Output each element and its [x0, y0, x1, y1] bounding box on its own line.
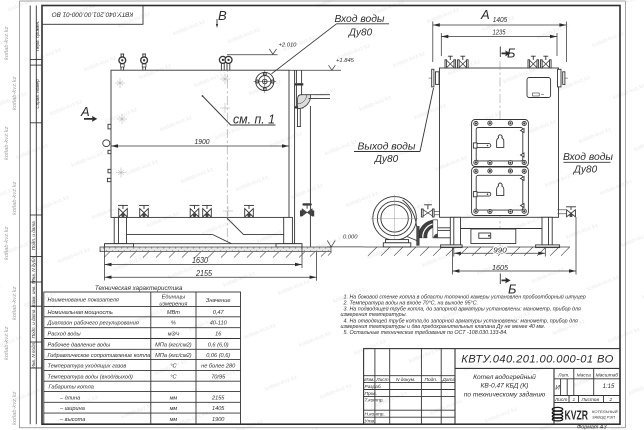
svg-text:1235: 1235: [493, 27, 507, 36]
svg-text:1:15: 1:15: [603, 384, 615, 390]
svg-text:1. На боковой стенке котла в: 1. На боковой стенке котла в области топ…: [344, 293, 586, 300]
svg-text:Вход воды: Вход воды: [563, 152, 613, 163]
svg-text:Ду80: Ду80: [348, 27, 373, 38]
svg-text:измерения: измерения: [159, 301, 187, 307]
svg-text:+2.010: +2.010: [279, 43, 298, 49]
svg-text:+1.845: +1.845: [336, 58, 355, 64]
svg-text:2155: 2155: [211, 395, 225, 401]
svg-text:Лист: Лист: [554, 397, 567, 403]
svg-text:мм: мм: [170, 417, 178, 423]
svg-text:0,06 (0,6): 0,06 (0,6): [206, 353, 230, 359]
svg-text:1900: 1900: [195, 137, 211, 146]
svg-text:kotlab-kvz.kz: kotlab-kvz.kz: [12, 391, 18, 425]
svg-text:Подп. и дата: Подп. и дата: [31, 221, 36, 250]
svg-text:0,6 (6,0): 0,6 (6,0): [208, 342, 229, 348]
svg-text:Н.контр.: Н.контр.: [365, 412, 385, 418]
svg-text:– ширина: – ширина: [59, 406, 85, 412]
svg-text:40-110: 40-110: [210, 321, 228, 327]
svg-text:°С: °С: [170, 364, 177, 370]
svg-text:КВТУ.040.201.00.000-01 ВО: КВТУ.040.201.00.000-01 ВО: [52, 10, 133, 17]
svg-text:Выход воды: Выход воды: [358, 142, 416, 153]
svg-text:Лит.: Лит.: [557, 373, 569, 379]
svg-text:Т.контр.: Т.контр.: [365, 398, 384, 404]
svg-text:16: 16: [215, 332, 222, 338]
svg-text:Лист: Лист: [375, 377, 388, 383]
svg-text:А: А: [80, 104, 90, 119]
svg-text:Рабочее давление воды: Рабочее давление воды: [48, 342, 111, 348]
svg-text:2: 2: [609, 397, 613, 403]
svg-text:м3/ч: м3/ч: [168, 332, 179, 338]
svg-text:kotlab-kvz.kz: kotlab-kvz.kz: [4, 326, 10, 360]
svg-text:kotlab-kvz.kz: kotlab-kvz.kz: [4, 26, 10, 60]
svg-text:ЗАВОД РЭП: ЗАВОД РЭП: [592, 414, 615, 419]
svg-text:Инв. N дубл.: Инв. N дубл.: [31, 256, 36, 283]
svg-text:0.000: 0.000: [343, 235, 358, 241]
svg-text:Котел водогрейный: Котел водогрейный: [473, 373, 536, 381]
svg-text:А: А: [480, 7, 490, 22]
svg-text:kotlab-kvz.kz: kotlab-kvz.kz: [12, 76, 18, 110]
svg-text:1900: 1900: [212, 417, 225, 423]
svg-text:Подп. и дата: Подп. и дата: [31, 309, 36, 338]
svg-text:по техническому заданию: по техническому заданию: [464, 390, 546, 398]
svg-text:Разраб.: Разраб.: [365, 384, 382, 390]
svg-text:Листов: Листов: [581, 397, 600, 403]
svg-text:– длина: – длина: [59, 395, 80, 401]
svg-text:N докум.: N докум.: [396, 377, 415, 383]
svg-text:0,47: 0,47: [213, 310, 225, 316]
svg-text:1405: 1405: [212, 406, 225, 412]
svg-text:°С: °С: [170, 374, 177, 380]
svg-text:1: 1: [573, 397, 576, 403]
svg-text:990: 990: [493, 246, 507, 255]
svg-text:не более 280: не более 280: [201, 364, 236, 370]
svg-text:Подп.: Подп.: [425, 377, 438, 383]
svg-text:Утв.: Утв.: [365, 418, 376, 424]
svg-text:Справ. номер: Справ. номер: [35, 79, 40, 109]
svg-text:5. Остальные технические треб: 5. Остальные технические требования по О…: [344, 330, 508, 336]
svg-text:kotlab-kvz.kz: kotlab-kvz.kz: [12, 286, 18, 320]
svg-text:Номинальная мощность: Номинальная мощность: [48, 310, 113, 316]
svg-text:– высота: – высота: [59, 417, 85, 423]
svg-text:Дата: Дата: [442, 377, 456, 383]
svg-text:1630: 1630: [192, 256, 208, 265]
svg-text:Значение: Значение: [206, 298, 231, 304]
svg-text:1405: 1405: [493, 15, 508, 24]
svg-text:Расход воды: Расход воды: [48, 332, 81, 338]
svg-text:Габариты котла: Габариты котла: [49, 385, 94, 391]
svg-text:Масштаб: Масштаб: [596, 373, 619, 379]
svg-text:МВт: МВт: [167, 310, 180, 316]
svg-text:Изм.: Изм.: [364, 377, 374, 383]
svg-text:КВТУ.040.201.00.000-01 ВО: КВТУ.040.201.00.000-01 ВО: [461, 354, 614, 366]
svg-text:МПа (кгс/см2): МПа (кгс/см2): [155, 353, 192, 359]
svg-text:Температура уходящих газов: Температура уходящих газов: [48, 364, 127, 370]
svg-text:2. Температура воды на входе: 2. Температура воды на входе 70°С, на вы…: [343, 301, 479, 307]
svg-text:КОТЕЛЬНЫЙ: КОТЕЛЬНЫЙ: [592, 409, 618, 414]
svg-text:KVZR: KVZR: [565, 408, 589, 423]
svg-text:И: И: [555, 385, 560, 392]
svg-text:Диапазон рабочего регулировани: Диапазон рабочего регулирования: [47, 321, 139, 327]
svg-text:kotlab-kvz.kz: kotlab-kvz.kz: [12, 181, 18, 215]
svg-text:измерения температуры.: измерения температуры.: [341, 312, 408, 318]
svg-text:Пров.: Пров.: [365, 391, 378, 397]
svg-text:kotlab-kvz.kz: kotlab-kvz.kz: [4, 226, 10, 260]
svg-text:Единицы: Единицы: [162, 295, 185, 301]
svg-text:мм: мм: [170, 395, 178, 401]
svg-text:Б: Б: [507, 46, 516, 61]
svg-text:Формат А3: Формат А3: [577, 425, 607, 430]
svg-text:Температура воды (вход/выход): Температура воды (вход/выход): [48, 374, 134, 380]
svg-text:Инв. N подл.: Инв. N подл.: [31, 342, 36, 369]
svg-text:см. п. 1: см. п. 1: [233, 111, 275, 126]
svg-text:Перв. примен.: Перв. примен.: [35, 21, 40, 52]
svg-text:kotlab-kvz.kz: kotlab-kvz.kz: [4, 126, 10, 160]
svg-text:70/95: 70/95: [211, 374, 226, 380]
svg-text:Взам. инв. N: Взам. инв. N: [31, 280, 36, 307]
svg-text:Ду80: Ду80: [573, 165, 598, 176]
svg-text:Гидравлическое сопротивление к: Гидравлическое сопротивление котла: [48, 353, 151, 359]
svg-text:В: В: [218, 8, 227, 23]
svg-text:Вход воды: Вход воды: [335, 14, 385, 25]
svg-text:2155: 2155: [195, 269, 212, 278]
svg-text:Техническая характеристика: Техническая характеристика: [95, 285, 183, 292]
svg-text:Ду80: Ду80: [374, 154, 399, 165]
svg-text:мм: мм: [170, 406, 178, 412]
svg-text:Масса: Масса: [577, 373, 592, 379]
svg-text:КВ-0,47 КБД (К): КВ-0,47 КБД (К): [481, 383, 529, 390]
svg-text:МПа (кгс/см2): МПа (кгс/см2): [155, 342, 192, 348]
svg-text:%: %: [171, 321, 176, 327]
svg-text:Наименование показателя: Наименование показателя: [48, 298, 119, 304]
svg-text:1605: 1605: [492, 263, 509, 272]
